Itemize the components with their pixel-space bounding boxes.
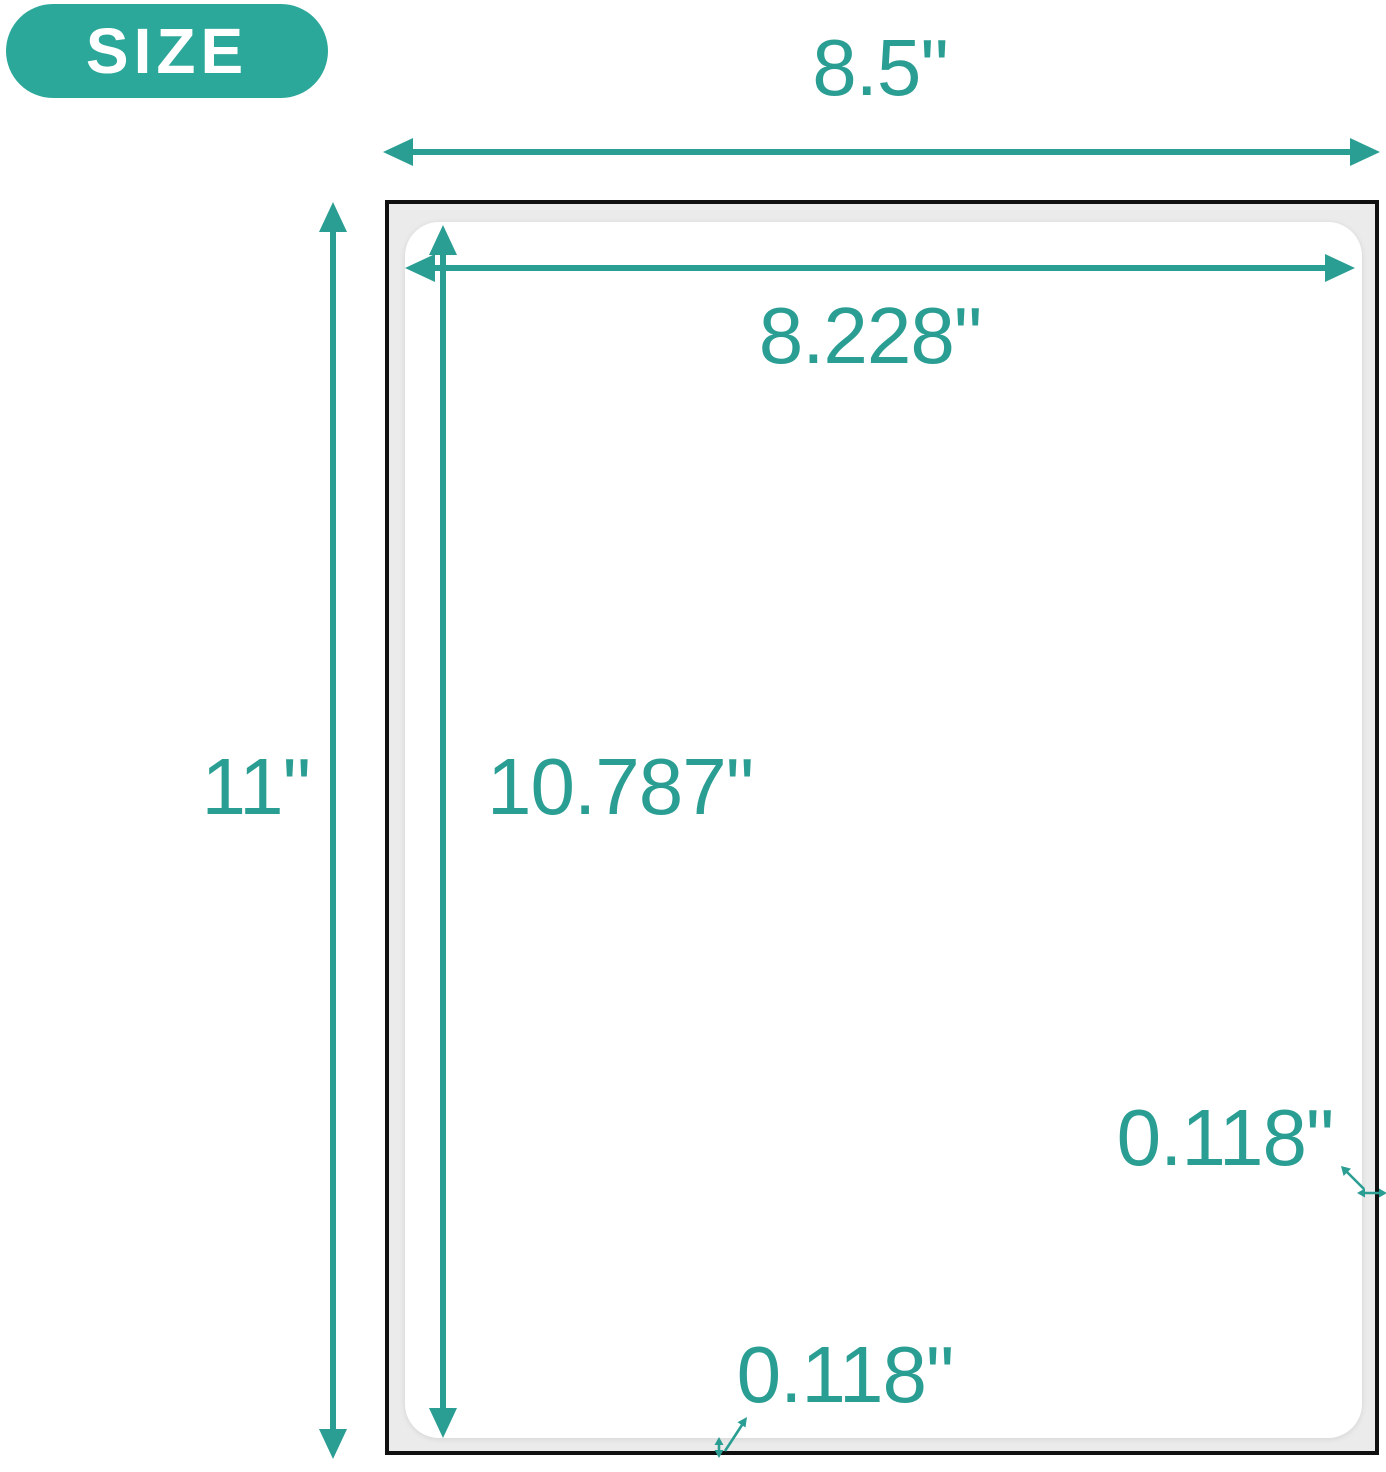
side-margin-value: 0.118": [1090, 1098, 1360, 1178]
paper-width-value: 8.5": [690, 28, 1070, 108]
size-badge-label: SIZE: [86, 14, 248, 88]
label-width-arrow-icon: [405, 254, 1355, 282]
paper-height-value: 11": [60, 747, 310, 827]
side-margin-callout-arrow-icon: [1333, 1158, 1386, 1204]
bottom-margin-callout-arrow-icon: [700, 1408, 756, 1464]
paper-width-arrow-icon: [383, 138, 1380, 166]
paper-height-arrow-icon: [319, 202, 347, 1459]
label-height-value: 10.787": [487, 747, 753, 827]
size-badge: SIZE: [6, 4, 328, 98]
label-height-arrow-icon: [429, 225, 457, 1438]
label-width-value: 8.228": [660, 296, 1080, 376]
bottom-margin-value: 0.118": [715, 1335, 975, 1415]
label-size-diagram: SIZE 8.5" 8.228" 11" 10.787" 0.118" 0.11…: [0, 0, 1386, 1472]
